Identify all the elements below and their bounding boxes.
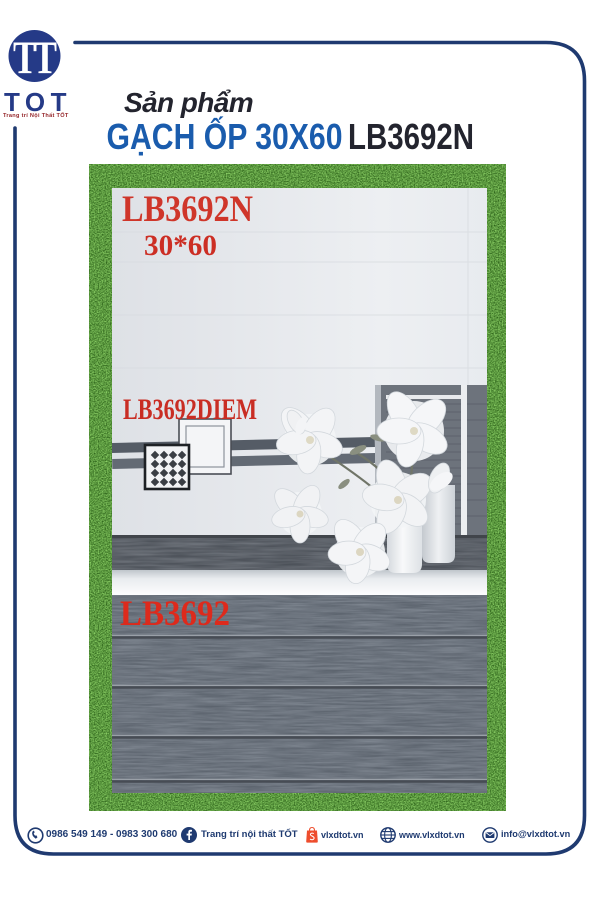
svg-text:LB3692N: LB3692N (122, 189, 253, 230)
svg-text:GẠCH ỐP 30X60: GẠCH ỐP 30X60 (107, 115, 343, 157)
svg-text:30*60: 30*60 (144, 229, 217, 262)
svg-text:LB3692N: LB3692N (348, 116, 474, 157)
svg-text:T: T (33, 33, 57, 85)
svg-text:LB3692DIEM: LB3692DIEM (123, 393, 257, 426)
svg-text:LB3692: LB3692 (120, 593, 230, 633)
